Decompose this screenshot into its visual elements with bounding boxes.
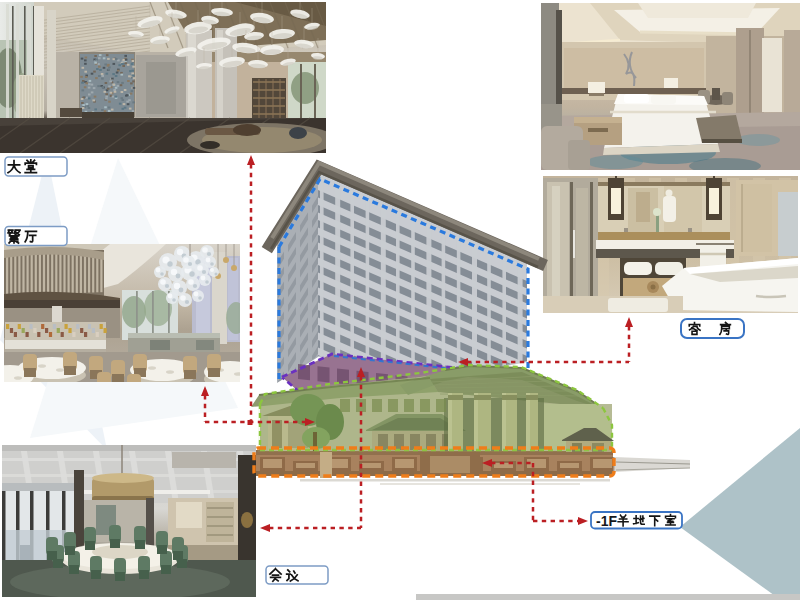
svg-text:-1F: -1F bbox=[596, 513, 617, 529]
